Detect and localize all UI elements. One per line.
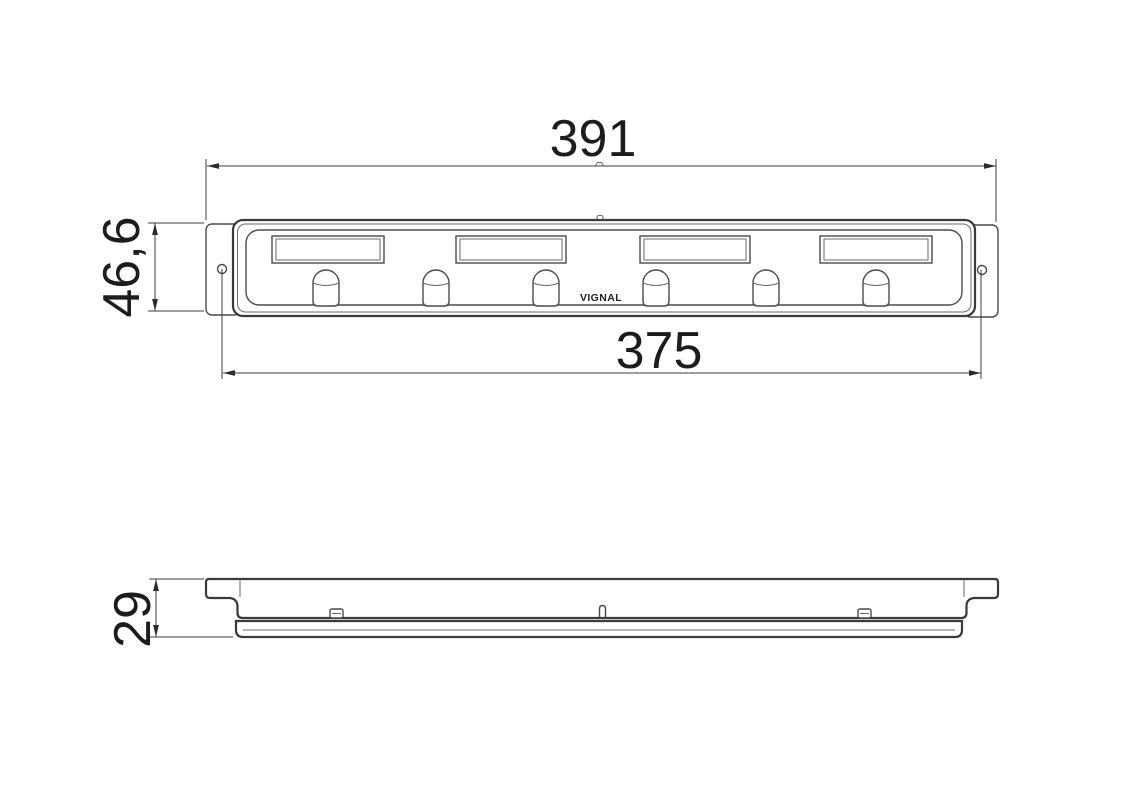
arrowhead-left [223,370,235,376]
front-view: VIGNAL [206,216,998,318]
mounting-hole-right [978,266,987,275]
arrowhead-top [153,579,159,591]
dim-fixing-centres-label: 375 [616,322,703,380]
arrowhead-right [969,370,981,376]
lens-profile-outline [236,621,962,637]
arrowhead-top [152,223,158,235]
technical-drawing-canvas: VIGNAL 391 375 46,6 [0,0,1140,800]
led-dome-4 [643,270,669,306]
arrowhead-right [984,163,996,169]
clip-right [858,609,871,618]
led-dome-2 [423,270,449,306]
brand-logo-text: VIGNAL [580,292,622,304]
dim-height: 46,6 [93,216,204,317]
clip-left [330,609,343,618]
dim-depth-label: 29 [104,590,162,648]
led-dome-5 [753,270,779,306]
arrowhead-left [207,163,219,169]
arrowhead-bottom [152,299,158,311]
led-dome-3 [533,270,559,306]
led-dome-1 [313,270,339,306]
dim-overall-width: 391 [206,110,996,222]
dim-overall-width-label: 391 [550,110,637,168]
side-view [206,579,998,637]
dim-height-label: 46,6 [93,216,151,317]
led-dome-6 [863,270,889,306]
housing-profile-outline [206,579,998,618]
